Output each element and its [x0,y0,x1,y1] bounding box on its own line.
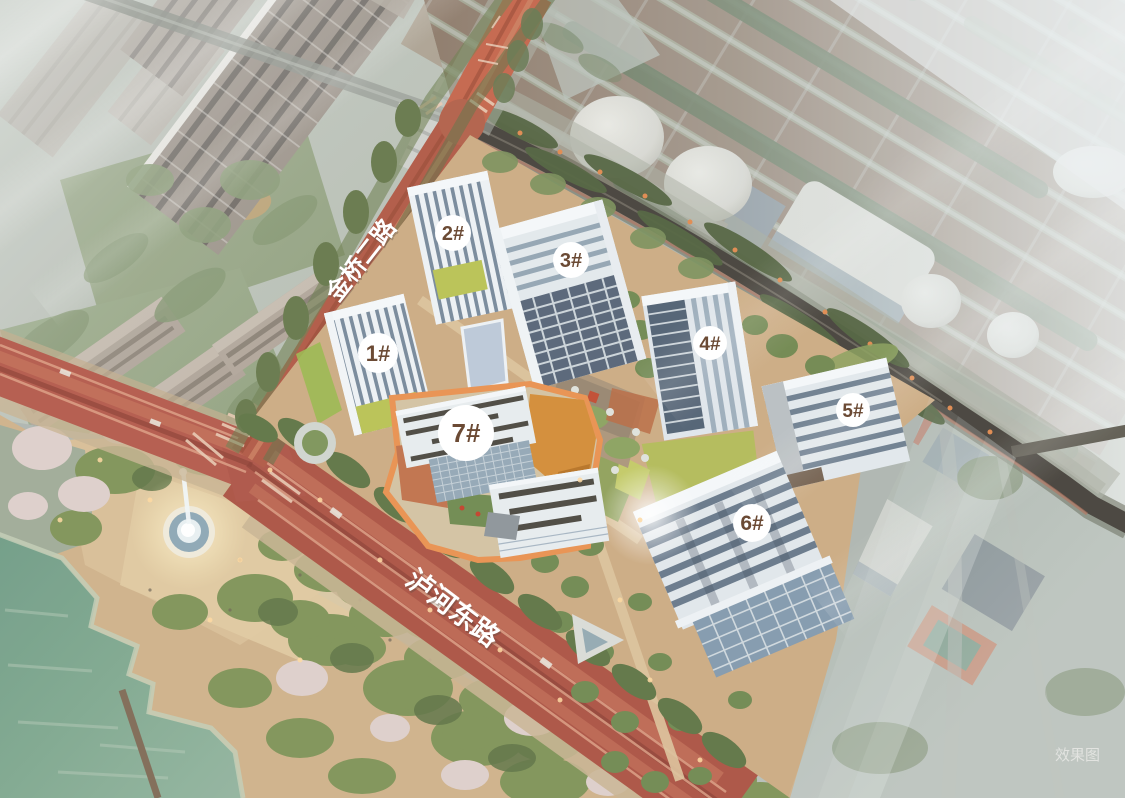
svg-text:1#: 1# [366,341,390,366]
svg-text:5#: 5# [842,401,864,422]
svg-text:4#: 4# [699,334,721,355]
svg-text:6#: 6# [740,512,764,535]
svg-text:2#: 2# [442,223,464,245]
svg-text:效果图: 效果图 [1055,747,1100,764]
svg-text:7#: 7# [452,418,481,448]
svg-text:3#: 3# [560,250,582,272]
